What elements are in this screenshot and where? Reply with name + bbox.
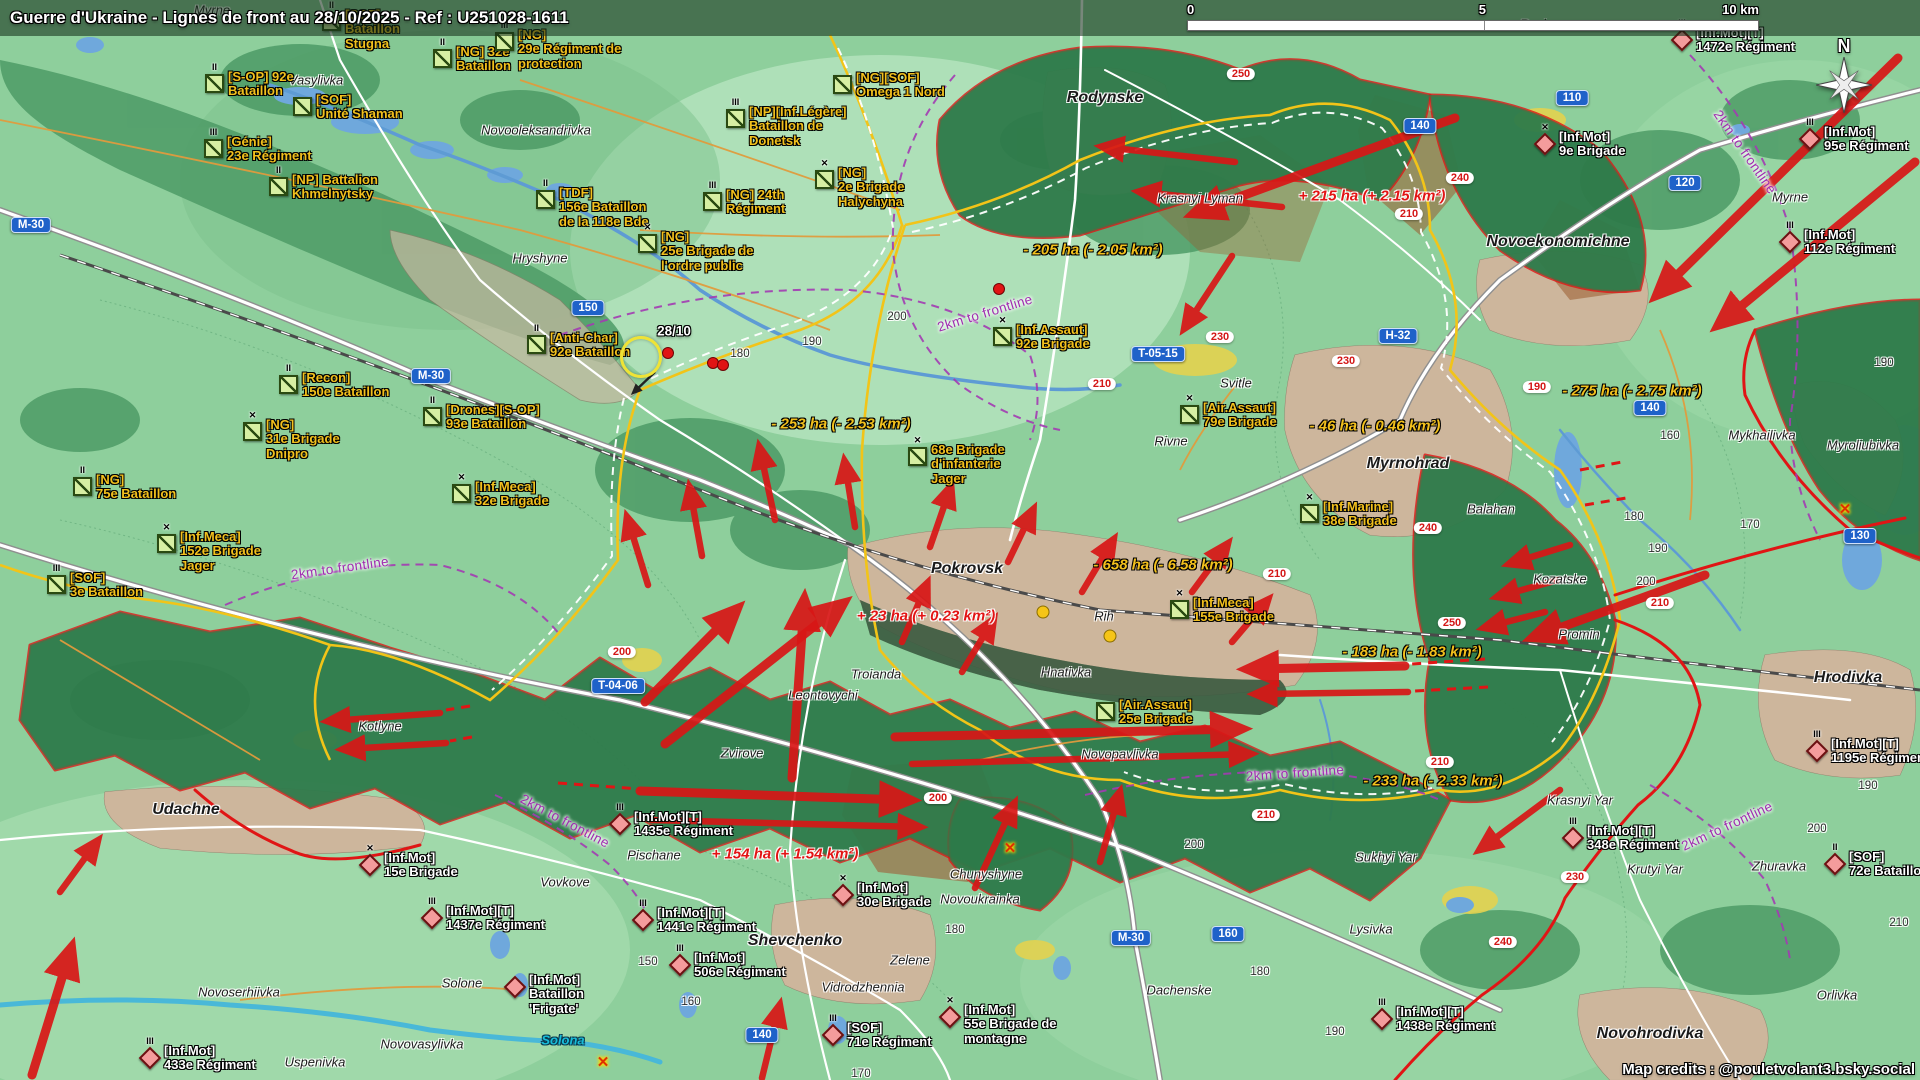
place-name: Leontovychi xyxy=(788,688,857,703)
place-label: Novoukrainka xyxy=(940,892,1020,907)
ua-unit-icon: ✕ xyxy=(1300,504,1319,523)
contour-value: 170 xyxy=(851,1068,870,1080)
contour-value: 210 xyxy=(1889,917,1908,929)
place-name: Novooleksandrivka xyxy=(481,123,591,138)
scale-bar-labels: 0 5 10 km xyxy=(1187,2,1759,20)
road-number: M-30 xyxy=(418,370,444,382)
place-label: Novoekonomichne xyxy=(1486,233,1629,251)
infantry-square-icon xyxy=(452,484,471,503)
road-shield-red: 230 xyxy=(1206,331,1234,343)
infantry-square-icon xyxy=(1180,405,1199,424)
place-name: Vasylivka xyxy=(289,73,343,88)
ru-unit: III [Inf.Mot]112e Régiment xyxy=(1780,228,1895,257)
place-name: Zelene xyxy=(890,953,930,968)
place-name: Svitle xyxy=(1220,376,1252,391)
infantry-square-icon xyxy=(433,49,452,68)
road-shield-red: 230 xyxy=(1561,871,1589,883)
ru-unit-label: [Inf.Mot]9e Brigade xyxy=(1559,130,1625,159)
place-label: Solone xyxy=(442,976,482,991)
echelon-mark: II xyxy=(1832,842,1837,852)
ru-unit-icon: III xyxy=(610,814,630,834)
contour-label: 210 xyxy=(1889,917,1908,929)
contour-value: 200 xyxy=(1184,839,1203,851)
ru-unit-label: [Inf.Mot][T]1441e Régiment xyxy=(657,906,756,935)
place-name: Krutyi Yar xyxy=(1627,862,1683,877)
ru-unit-icon: III xyxy=(823,1025,843,1045)
diamond-icon xyxy=(1371,1008,1394,1031)
place-name: Krasnyi Yar xyxy=(1547,793,1613,808)
ru-unit-label: [Inf.Mot]55e Brigade demontagne xyxy=(964,1003,1057,1046)
echelon-mark: III xyxy=(1569,816,1577,826)
place-label: Krutyi Yar xyxy=(1627,862,1683,877)
place-label: Krasnyi Yar xyxy=(1547,793,1613,808)
contour-value: 190 xyxy=(802,336,821,348)
place-label: Myrnohrad xyxy=(1367,455,1450,473)
echelon-mark: III xyxy=(1378,997,1386,1007)
road-number: 230 xyxy=(1566,871,1584,883)
road-number: 210 xyxy=(1400,208,1418,220)
road-shield-red: 250 xyxy=(1227,68,1255,80)
area-change-label: - 183 ha (- 1.83 km²) xyxy=(1342,644,1481,661)
place-label: Zelene xyxy=(890,953,930,968)
contour-value: 180 xyxy=(730,348,749,360)
place-name: Novohrodivka xyxy=(1597,1025,1704,1042)
ru-unit-icon: III xyxy=(422,908,442,928)
place-name: Novoserhiivka xyxy=(198,985,280,1000)
road-number: 200 xyxy=(929,792,947,804)
infantry-square-icon xyxy=(908,447,927,466)
diamond-icon xyxy=(421,907,444,930)
ua-unit-label: [Inf.Meca]155e Brigade xyxy=(1193,596,1274,625)
place-label: Sukhyi Yar xyxy=(1355,850,1417,865)
ru-unit: [Inf.Mot]Bataillon'Frigate' xyxy=(505,973,584,1016)
echelon-mark: ✕ xyxy=(1306,492,1314,503)
ru-unit-label: [Inf.Mot]15e Brigade xyxy=(384,851,458,880)
area-change-value: - 658 ha (- 6.58 km²) xyxy=(1093,557,1232,574)
road-shield-blue: T-05-15 xyxy=(1131,346,1185,362)
road-number: 110 xyxy=(1563,92,1582,104)
compass-star-icon xyxy=(1816,57,1872,113)
road-shield-red: 240 xyxy=(1414,522,1442,534)
area-change-label: + 23 ha (+ 0.23 km²) xyxy=(857,608,995,625)
place-label: Rih xyxy=(1094,609,1114,624)
diamond-icon xyxy=(669,954,692,977)
road-shield-blue: 160 xyxy=(1211,926,1244,942)
place-label: Hrodivka xyxy=(1814,669,1882,687)
poi-dot-yellow xyxy=(1104,630,1117,643)
echelon-mark: III xyxy=(732,97,740,107)
ru-unit: ✕ [Inf.Mot]55e Brigade demontagne xyxy=(940,1003,1057,1046)
place-label: Vidrodzhennia xyxy=(822,980,905,995)
place-label: Hnativka xyxy=(1041,665,1092,680)
echelon-mark: II xyxy=(440,37,445,47)
road-shield-red: 210 xyxy=(1426,756,1454,768)
scale-bar-tick xyxy=(1484,21,1485,30)
area-change-label: - 46 ha (- 0.46 km²) xyxy=(1310,418,1441,435)
echelon-mark: II xyxy=(430,395,435,405)
contour-value: 190 xyxy=(1858,780,1877,792)
road-shield-blue: H-32 xyxy=(1379,328,1418,344)
ru-unit: III [Inf.Mot][T]1441e Régiment xyxy=(633,906,756,935)
ua-unit: [Air.Assaut]25e Brigade xyxy=(1096,698,1193,727)
contour-label: 200 xyxy=(1184,839,1203,851)
ru-unit-icon: ✕ xyxy=(940,1007,960,1027)
ua-unit-icon: II xyxy=(536,190,555,209)
poi-dot-yellow xyxy=(1037,606,1050,619)
road-number: 240 xyxy=(1494,936,1512,948)
infantry-square-icon xyxy=(815,170,834,189)
infantry-square-icon xyxy=(527,335,546,354)
diamond-icon xyxy=(1806,740,1829,763)
road-number: 120 xyxy=(1675,177,1694,189)
place-name: Rodynske xyxy=(1067,89,1143,106)
place-name: Hryshyne xyxy=(513,251,568,266)
diamond-icon xyxy=(1799,128,1822,151)
infantry-square-icon xyxy=(269,177,288,196)
compass-rose: N xyxy=(1812,36,1876,118)
diamond-icon xyxy=(359,854,382,877)
infantry-square-icon xyxy=(638,234,657,253)
place-label: Udachne xyxy=(152,801,220,819)
ua-unit: ✕ 68e Brigaded'infanterieJager xyxy=(908,443,1005,486)
ru-unit-icon: ✕ xyxy=(360,855,380,875)
infantry-square-icon xyxy=(73,477,92,496)
ua-unit-label: [NG][SOF]Omega 1 Nord xyxy=(856,71,945,100)
date-highlight-circle xyxy=(620,336,662,378)
area-change-value: - 46 ha (- 0.46 km²) xyxy=(1310,418,1441,435)
ua-unit-icon: ✕ xyxy=(908,447,927,466)
ua-unit: II [TDF]156e Bataillonde la 118e Bde xyxy=(536,186,649,229)
echelon-mark: II xyxy=(543,178,548,188)
ua-unit-label: [Inf.Assaut]92e Brigade xyxy=(1016,323,1090,352)
contour-label: 190 xyxy=(802,336,821,348)
place-label: Novooleksandrivka xyxy=(481,123,591,138)
echelon-mark: II xyxy=(276,165,281,175)
ua-unit-icon: II xyxy=(205,74,224,93)
diamond-icon xyxy=(1824,853,1847,876)
echelon-mark: III xyxy=(146,1036,154,1046)
area-change-label: + 215 ha (+ 2.15 km²) xyxy=(1299,188,1446,205)
ru-unit: ✕ [Inf.Mot]9e Brigade xyxy=(1535,130,1625,159)
place-name: Rivne xyxy=(1154,434,1187,449)
ru-unit-icon: III xyxy=(670,955,690,975)
place-name: Dachenske xyxy=(1146,983,1211,998)
echelon-mark: III xyxy=(1786,220,1794,230)
place-name: Balahan xyxy=(1467,502,1515,517)
contour-label: 200 xyxy=(1807,823,1826,835)
area-change-label: - 205 ha (- 2.05 km²) xyxy=(1023,242,1162,259)
ru-unit: III [Inf.Mot]506e Régiment xyxy=(670,951,786,980)
road-shield-blue: T-04-06 xyxy=(591,678,645,694)
place-label: Myroliubivka xyxy=(1827,438,1899,453)
scale-5: 5 xyxy=(1479,2,1486,17)
ua-unit-icon: III xyxy=(204,139,223,158)
map-canvas[interactable]: MyrneVasylivkaNovooleksandrivkaHryshyneR… xyxy=(0,0,1920,1080)
place-name: Uspenivka xyxy=(285,1055,346,1070)
ru-unit: ✕ [Inf.Mot]30e Brigade xyxy=(833,881,931,910)
road-number: 210 xyxy=(1268,568,1286,580)
x-glyph: ✕ xyxy=(597,1054,610,1071)
area-change-value: - 275 ha (- 2.75 km²) xyxy=(1562,383,1701,400)
contour-label: 180 xyxy=(945,924,964,936)
road-shield-red: 200 xyxy=(924,792,952,804)
ua-unit-icon: II xyxy=(527,335,546,354)
ru-unit-icon: ✕ xyxy=(833,885,853,905)
ua-unit: II [Anti-Char]92e Bataillon xyxy=(527,331,630,360)
x-glyph: ✕ xyxy=(1004,840,1017,857)
road-shield-red: 230 xyxy=(1332,355,1360,367)
road-number: 240 xyxy=(1451,172,1469,184)
contour-value: 190 xyxy=(1325,1026,1344,1038)
echelon-mark: III xyxy=(676,943,684,953)
ru-unit-label: [SOF]71e Régiment xyxy=(847,1021,932,1050)
incident-dot-red xyxy=(717,359,729,371)
echelon-mark: III xyxy=(1806,117,1814,127)
echelon-mark: III xyxy=(639,898,647,908)
x-marker-icon: ✕ xyxy=(597,1053,610,1071)
ua-unit: ✕ [Inf.Meca]152e BrigadeJager xyxy=(157,530,261,573)
road-shield-red: 210 xyxy=(1263,568,1291,580)
date-marker: 28/10 xyxy=(657,324,691,339)
ua-unit: II [Recon]150e Bataillon xyxy=(279,371,389,400)
ru-unit-label: [Inf.Mot][T]1437e Régiment xyxy=(446,904,545,933)
diamond-icon xyxy=(632,909,655,932)
road-number: 160 xyxy=(1218,928,1237,940)
echelon-mark: III xyxy=(1813,729,1821,739)
road-number: 210 xyxy=(1651,597,1669,609)
echelon-mark: ✕ xyxy=(366,843,374,854)
ua-unit: III [SOF]3e Bataillon xyxy=(47,571,143,600)
ru-unit-icon: ✕ xyxy=(1535,134,1555,154)
contour-label: 150 xyxy=(638,956,657,968)
road-shield-red: 240 xyxy=(1446,172,1474,184)
echelon-mark: III xyxy=(616,802,624,812)
infantry-square-icon xyxy=(993,327,1012,346)
ua-unit: ✕ [Inf.Meca]32e Brigade xyxy=(452,480,549,509)
ru-unit-icon: III xyxy=(1800,129,1820,149)
road-shield-blue: 140 xyxy=(745,1027,778,1043)
ru-unit-icon: III xyxy=(1563,828,1583,848)
ua-unit: II [Drones][S-OP]93e Bataillon xyxy=(423,403,540,432)
ru-unit-icon: III xyxy=(1807,741,1827,761)
ua-unit: III [NG] 24thRégiment xyxy=(703,188,785,217)
road-shield-blue: 140 xyxy=(1633,400,1666,416)
place-label: Balahan xyxy=(1467,502,1515,517)
area-change-value: + 23 ha (+ 0.23 km²) xyxy=(857,608,995,625)
scale-10km: 10 km xyxy=(1722,2,1759,17)
road-number: 140 xyxy=(752,1029,771,1041)
place-label: Pokrovsk xyxy=(931,560,1003,578)
contour-label: 190 xyxy=(1874,357,1893,369)
area-change-label: - 275 ha (- 2.75 km²) xyxy=(1562,383,1701,400)
road-shield-red: 210 xyxy=(1252,809,1280,821)
area-change-label: - 253 ha (- 2.53 km²) xyxy=(771,416,910,433)
road-number: 140 xyxy=(1410,120,1429,132)
ua-unit-label: [NG]31e BrigadeDnipro xyxy=(266,418,340,461)
ua-unit: III [NP][Inf.Légère]Bataillon deDonetsk xyxy=(726,105,847,148)
road-number: 130 xyxy=(1850,530,1869,542)
contour-label: 170 xyxy=(851,1068,870,1080)
ru-unit-label: [Inf.Mot][T]1195e Régiment xyxy=(1831,737,1920,766)
ru-unit-label: [Inf.Mot]506e Régiment xyxy=(694,951,786,980)
place-name: Pischane xyxy=(627,848,680,863)
place-label: Krasnyi Lyman xyxy=(1157,191,1243,206)
ua-unit-label: [Anti-Char]92e Bataillon xyxy=(550,331,630,360)
ua-unit-label: [NG]25e Brigade del'ordre public xyxy=(661,230,754,273)
ru-unit: III [SOF]71e Régiment xyxy=(823,1021,932,1050)
contour-label: 190 xyxy=(1325,1026,1344,1038)
contour-value: 170 xyxy=(1740,519,1759,531)
infantry-square-icon xyxy=(293,97,312,116)
ru-unit-icon xyxy=(505,977,525,997)
diamond-icon xyxy=(1562,827,1585,850)
contour-value: 200 xyxy=(1636,576,1655,588)
ru-unit-icon: II xyxy=(1825,854,1845,874)
ua-unit-label: [NP][Inf.Légère]Bataillon deDonetsk xyxy=(749,105,847,148)
scale-0: 0 xyxy=(1187,2,1194,17)
ua-unit: ✕ [Inf.Marine]38e Brigade xyxy=(1300,500,1397,529)
ua-unit-icon: ✕ xyxy=(1180,405,1199,424)
echelon-mark: ✕ xyxy=(914,435,922,446)
ua-unit-icon: III xyxy=(703,192,722,211)
ru-unit: II [SOF]72e Bataillon xyxy=(1825,850,1920,879)
infantry-square-icon xyxy=(204,139,223,158)
place-name: Novopavlivka xyxy=(1081,747,1158,762)
incident-dot-red xyxy=(662,347,674,359)
ua-unit-label: [Recon]150e Bataillon xyxy=(302,371,389,400)
road-shield-red: 210 xyxy=(1088,378,1116,390)
echelon-mark: ✕ xyxy=(249,410,257,421)
contour-value: 190 xyxy=(1648,543,1667,555)
road-number: M-30 xyxy=(1118,932,1144,944)
road-number: 250 xyxy=(1443,617,1461,629)
echelon-mark: III xyxy=(829,1013,837,1023)
ua-unit-label: 68e Brigaded'infanterieJager xyxy=(931,443,1005,486)
ua-unit-icon: ✕ xyxy=(1170,600,1189,619)
ua-unit-icon: ✕ xyxy=(452,484,471,503)
ua-unit-label: [Génie]23e Régiment xyxy=(227,135,312,164)
place-label: Orlivka xyxy=(1817,988,1857,1003)
ua-unit-label: [SOF]3e Bataillon xyxy=(70,571,143,600)
ua-unit-label: [NG]75e Bataillon xyxy=(96,473,176,502)
place-name: Kozatske xyxy=(1533,572,1586,587)
ua-unit-label: [S-OP] 92eBataillon xyxy=(228,70,294,99)
echelon-mark: ✕ xyxy=(821,158,829,169)
map-credits: Map credits : @pouletvolant3.bsky.social xyxy=(1622,1061,1915,1078)
road-number: T-05-15 xyxy=(1138,348,1178,360)
echelon-mark: ✕ xyxy=(644,222,652,233)
road-number: 210 xyxy=(1093,378,1111,390)
road-number: T-04-06 xyxy=(598,680,638,692)
x-glyph: ✕ xyxy=(1839,501,1852,518)
contour-label: 160 xyxy=(681,996,700,1008)
ua-unit: ✕ [Air.Assaut]79e Brigade xyxy=(1180,401,1277,430)
ua-unit: ✕ [Inf.Meca]155e Brigade xyxy=(1170,596,1274,625)
ru-unit-label: [Inf.Mot]95e Régiment xyxy=(1824,125,1909,154)
ua-unit-icon: II xyxy=(433,49,452,68)
contour-label: 200 xyxy=(1636,576,1655,588)
ua-unit-icon: II xyxy=(423,407,442,426)
ua-unit-icon: II xyxy=(73,477,92,496)
ua-unit-label: [SOF]Unité Shaman xyxy=(316,93,403,122)
area-change-value: - 183 ha (- 1.83 km²) xyxy=(1342,644,1481,661)
road-shield-red: 250 xyxy=(1438,617,1466,629)
ua-unit: ✕ [NG]31e BrigadeDnipro xyxy=(243,418,340,461)
place-name: Zhuravka xyxy=(1752,859,1806,874)
map-title: Guerre d'Ukraine - Lignes de front au 28… xyxy=(10,8,569,28)
road-shield-red: 240 xyxy=(1489,936,1517,948)
area-change-label: - 233 ha (- 2.33 km²) xyxy=(1363,773,1502,790)
infantry-square-icon xyxy=(279,375,298,394)
infantry-square-icon xyxy=(243,422,262,441)
diamond-icon xyxy=(504,976,527,999)
place-label: Troianda xyxy=(851,667,901,682)
scale-bar: 0 5 10 km xyxy=(1187,2,1759,31)
road-shield-blue: 150 xyxy=(571,300,604,316)
contour-label: 190 xyxy=(1648,543,1667,555)
ua-unit-label: [Inf.Meca]152e BrigadeJager xyxy=(180,530,261,573)
road-number: 190 xyxy=(1528,381,1546,393)
ua-unit: II [S-OP] 92eBataillon xyxy=(205,70,294,99)
place-name: Pokrovsk xyxy=(931,560,1003,577)
infantry-square-icon xyxy=(536,190,555,209)
ua-unit-icon: ✕ xyxy=(157,534,176,553)
echelon-mark: III xyxy=(428,896,436,906)
diamond-icon xyxy=(822,1024,845,1047)
place-name: Vidrodzhennia xyxy=(822,980,905,995)
ua-unit-label: [Inf.Marine]38e Brigade xyxy=(1323,500,1397,529)
place-name: Hrodivka xyxy=(1814,669,1882,686)
echelon-mark: II xyxy=(212,62,217,72)
ru-unit-icon: III xyxy=(1780,232,1800,252)
ua-unit: [NG][SOF]Omega 1 Nord xyxy=(833,71,945,100)
contour-value: 180 xyxy=(945,924,964,936)
ua-unit-label: [TDF]156e Bataillonde la 118e Bde xyxy=(559,186,649,229)
place-label: Pischane xyxy=(627,848,680,863)
ru-unit-label: [Inf.Mot]30e Brigade xyxy=(857,881,931,910)
infantry-square-icon xyxy=(423,407,442,426)
ru-unit: ✕ [Inf.Mot]15e Brigade xyxy=(360,851,458,880)
ru-unit: III [Inf.Mot][T]1437e Régiment xyxy=(422,904,545,933)
ru-unit-icon: III xyxy=(1372,1009,1392,1029)
echelon-mark: ✕ xyxy=(1541,122,1549,133)
diamond-icon xyxy=(1534,133,1557,156)
ua-unit: ✕ [NG]25e Brigade del'ordre public xyxy=(638,230,754,273)
place-name: Novovasylivka xyxy=(380,1037,463,1052)
compass-north-label: N xyxy=(1812,36,1876,57)
place-name: Solone xyxy=(442,976,482,991)
ua-unit-icon: III xyxy=(47,575,66,594)
ua-unit-label: [Air.Assaut]25e Brigade xyxy=(1119,698,1193,727)
infantry-square-icon xyxy=(157,534,176,553)
ru-unit-label: [Inf.Mot]112e Régiment xyxy=(1804,228,1895,257)
place-label: Vovkove xyxy=(540,875,589,890)
place-label: Novohrodivka xyxy=(1597,1025,1704,1043)
contour-label: 160 xyxy=(1660,430,1679,442)
place-name: Chunyshyne xyxy=(950,867,1022,882)
x-marker-icon: ✕ xyxy=(1839,500,1852,518)
echelon-mark: ✕ xyxy=(1176,588,1184,599)
ua-unit: ✕ [NG]2e BrigadeHalychyna xyxy=(815,166,904,209)
area-change-value: + 154 ha (+ 1.54 km²) xyxy=(712,846,859,863)
ua-unit-icon: III xyxy=(726,109,745,128)
road-number: 150 xyxy=(578,302,597,314)
infantry-square-icon xyxy=(1170,600,1189,619)
place-name: Shevchenko xyxy=(748,932,842,949)
ua-unit: III [Génie]23e Régiment xyxy=(204,135,312,164)
ua-unit-icon: ✕ xyxy=(993,327,1012,346)
echelon-mark: ✕ xyxy=(839,873,847,884)
